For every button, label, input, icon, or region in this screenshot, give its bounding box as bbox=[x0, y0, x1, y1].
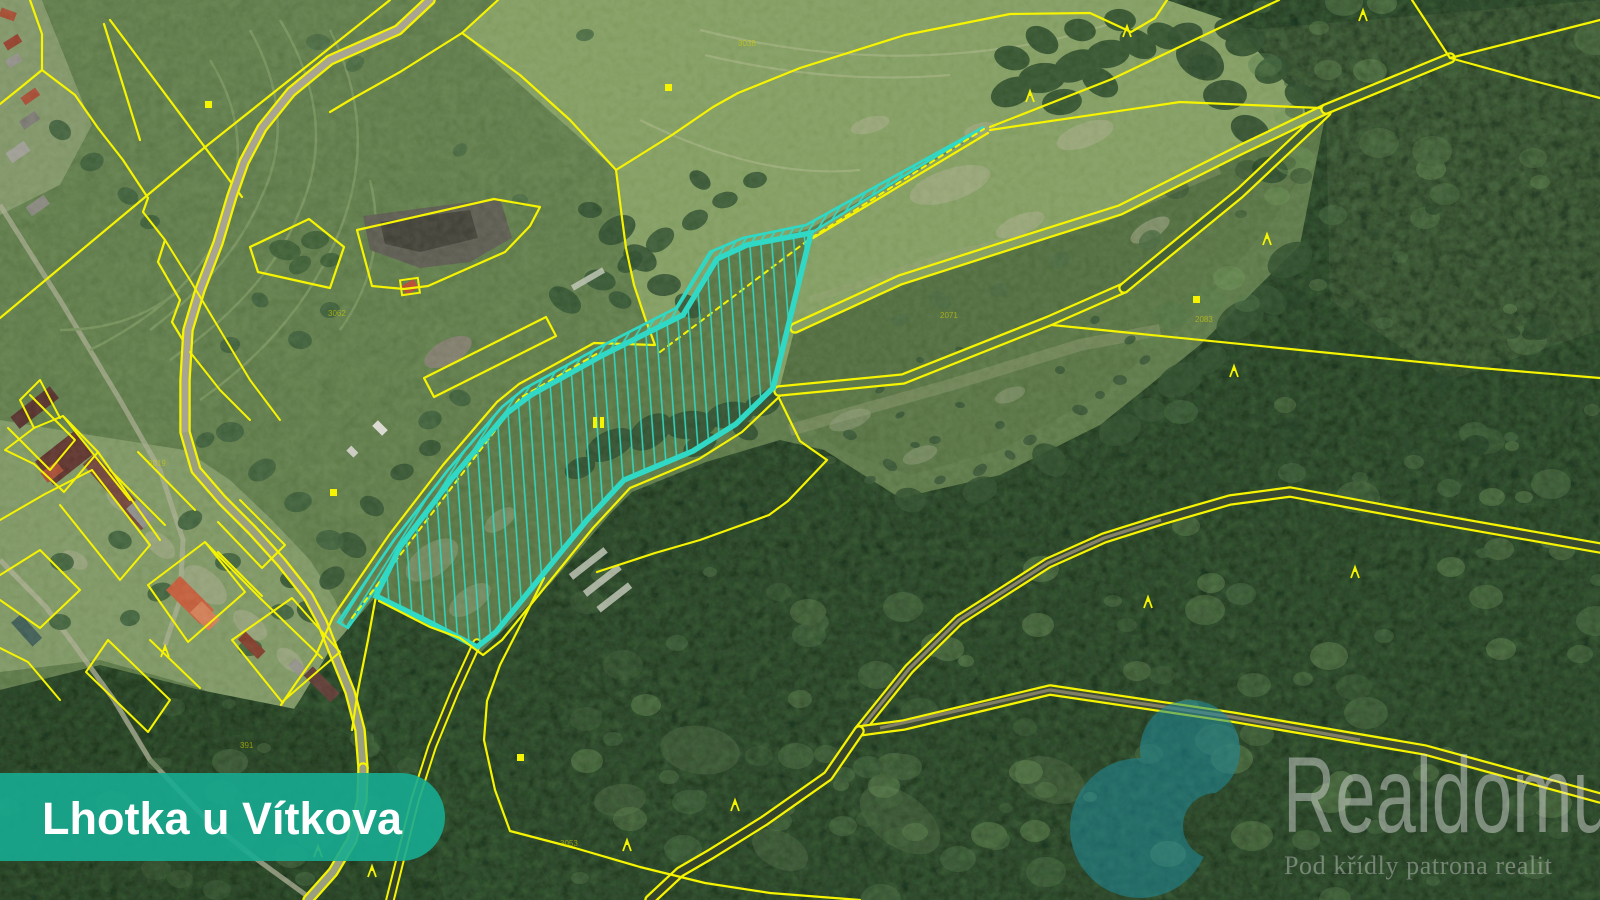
svg-text:2083: 2083 bbox=[1195, 315, 1213, 324]
svg-text:Pod křídly patrona realit: Pod křídly patrona realit bbox=[1284, 851, 1553, 880]
svg-text:3019: 3019 bbox=[148, 459, 166, 468]
svg-text:Lhotka u Vítkova: Lhotka u Vítkova bbox=[42, 793, 403, 844]
svg-text:Realdomus: Realdomus bbox=[1283, 736, 1600, 856]
svg-text:3062: 3062 bbox=[328, 309, 346, 318]
svg-text:3053: 3053 bbox=[560, 839, 578, 848]
svg-text:2071: 2071 bbox=[940, 311, 958, 320]
svg-text:3038: 3038 bbox=[738, 39, 756, 48]
svg-text:391: 391 bbox=[240, 741, 254, 750]
